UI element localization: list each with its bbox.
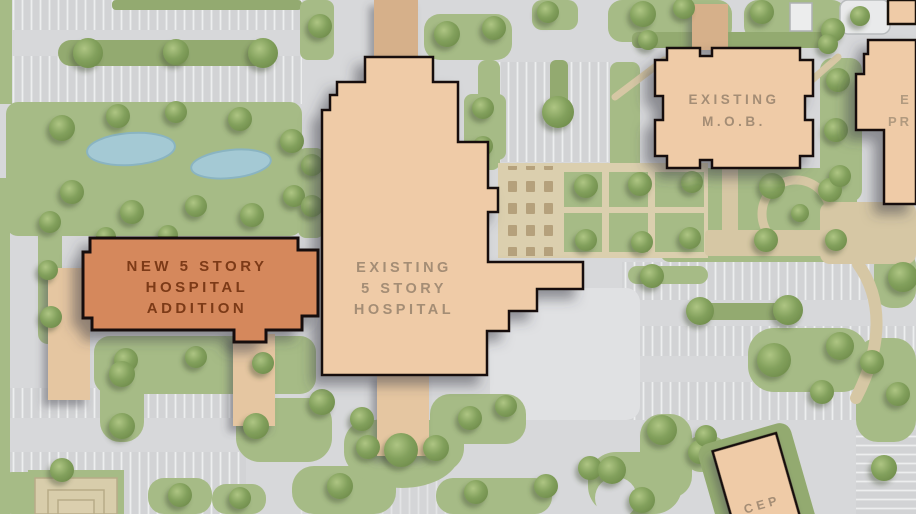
existing-mob-line2: M.O.B. [702,114,766,129]
existing-hospital-line2: 5 STORY [361,281,447,297]
new-addition-line1: NEW 5 STORY [126,258,267,275]
site-plan-canvas: EXISTING 5 STORY HOSPITAL NEW 5 STORY HO… [0,0,916,514]
right-edge-line2: PR [888,114,912,129]
building-existing-mob [655,48,813,168]
site-plan: EXISTING 5 STORY HOSPITAL NEW 5 STORY HO… [0,0,916,514]
entry-structure [28,470,124,514]
existing-mob-line1: EXISTING [688,92,779,107]
new-addition-line3: ADDITION [147,300,248,317]
right-edge-line1: E [900,92,912,107]
hospital-north-corridor [374,0,418,60]
existing-hospital-line3: HOSPITAL [354,302,454,318]
label-existing-hospital: EXISTING 5 STORY HOSPITAL [354,260,454,318]
existing-hospital-line1: EXISTING [356,260,452,276]
building-top-right-corner [888,0,916,24]
small-pad [790,3,812,31]
label-new-addition: NEW 5 STORY HOSPITAL ADDITION [126,258,267,317]
new-addition-line2: HOSPITAL [146,279,249,296]
mob-north-corridor [692,4,728,50]
addition-south-wing [233,334,275,426]
